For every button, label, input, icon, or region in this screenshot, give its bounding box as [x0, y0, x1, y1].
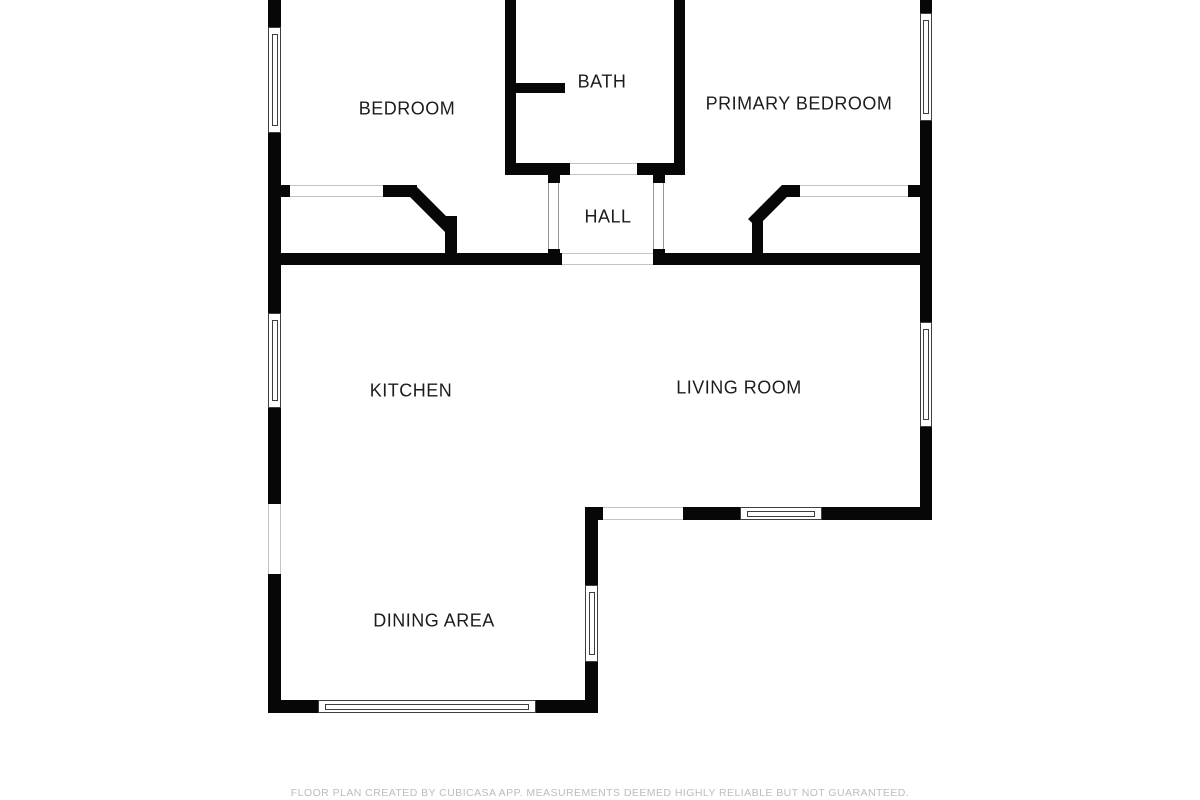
bath-inner-stub-wall	[505, 83, 565, 93]
window-glazing	[923, 20, 929, 114]
primary-corner-wall	[752, 216, 763, 265]
living-bottom-wall-left	[683, 507, 740, 520]
bath-bottom-wall-left	[505, 163, 570, 175]
hall-post-top-right	[653, 175, 665, 183]
wall-left-mid1	[268, 133, 281, 313]
room-label-primary-bedroom: PRIMARY BEDROOM	[706, 94, 893, 115]
dining-bottom-wall-left	[268, 700, 318, 713]
window-glazing	[923, 329, 929, 420]
primary-door-opening	[800, 185, 908, 197]
main-wall-right-segment	[653, 253, 932, 265]
hall-bottom-opening	[562, 253, 653, 265]
footer-disclaimer: FLOOR PLAN CREATED BY CUBICASA APP. MEAS…	[291, 787, 909, 799]
dining-side-window	[585, 585, 598, 662]
bath-right-wall	[674, 0, 685, 175]
floor-plan: BEDROOM BATH PRIMARY BEDROOM HALL KITCHE…	[0, 0, 1200, 800]
bedroom-corner-wall	[445, 216, 457, 265]
dining-entry-opening	[268, 504, 281, 574]
room-label-hall: HALL	[584, 207, 631, 228]
wall-left-top	[268, 0, 281, 27]
dining-corner-block	[585, 507, 603, 520]
bath-bottom-wall-right	[637, 163, 685, 175]
wall-left-bottom	[268, 574, 281, 713]
dining-bottom-wall-right	[536, 700, 598, 713]
hall-side-outline-right	[653, 183, 664, 249]
living-bottom-wall-right	[822, 507, 932, 520]
dining-right-wall-top	[585, 520, 598, 585]
window-glazing	[272, 320, 278, 401]
room-label-bath: BATH	[578, 72, 627, 93]
dining-bottom-window	[318, 700, 536, 713]
room-label-kitchen: KITCHEN	[370, 381, 453, 402]
bedroom-window	[268, 27, 281, 133]
bath-door-opening	[570, 163, 637, 175]
window-glazing	[272, 34, 278, 126]
kitchen-living-passage-opening	[603, 507, 683, 520]
window-glazing	[589, 592, 595, 655]
room-label-bedroom: BEDROOM	[359, 99, 456, 120]
hall-post-top-left	[548, 175, 560, 183]
living-room-side-window	[920, 322, 932, 427]
room-label-dining-area: DINING AREA	[373, 611, 495, 632]
bedroom-door-opening	[290, 185, 383, 197]
wall-right-top	[920, 0, 932, 13]
primary-bedroom-window	[920, 13, 932, 121]
living-room-bottom-window	[740, 507, 822, 520]
room-label-living-room: LIVING ROOM	[676, 378, 802, 399]
kitchen-window	[268, 313, 281, 408]
window-glazing	[747, 511, 815, 517]
main-wall-left-segment	[268, 253, 562, 265]
hall-side-outline-left	[548, 183, 559, 249]
wall-left-mid2	[268, 408, 281, 504]
bedroom-door-jamb	[281, 185, 290, 197]
window-glazing	[325, 704, 529, 710]
wall-right-mid	[920, 121, 932, 322]
